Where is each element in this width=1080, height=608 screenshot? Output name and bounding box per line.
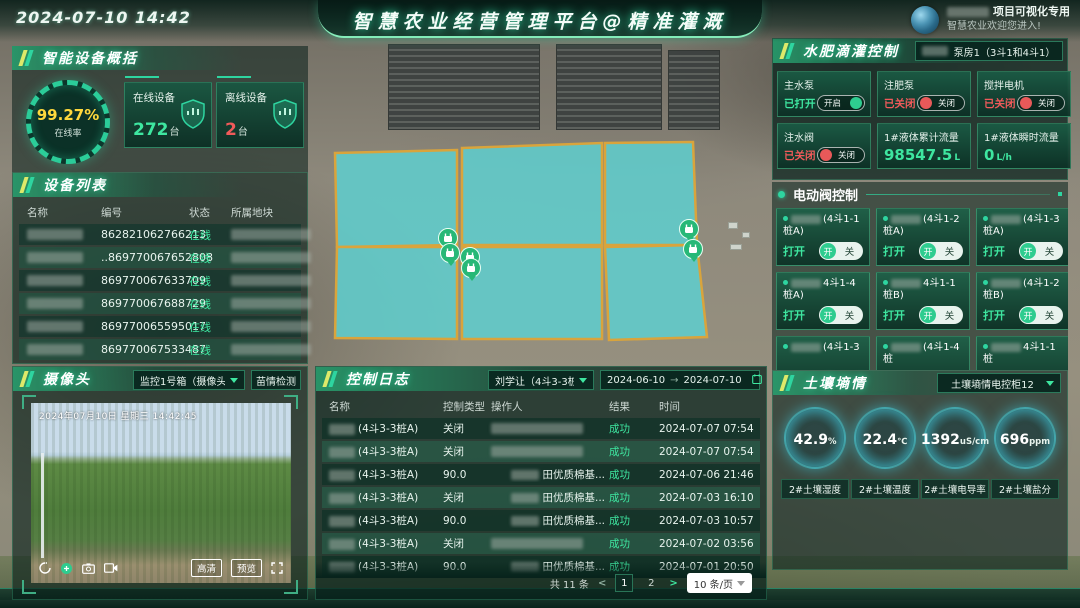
redacted-block [231,344,311,355]
meter-value: 98547.5L [884,146,960,164]
redacted-block [791,343,821,352]
soil-cabinet-selector[interactable]: 土壤墒情电控柜12 [937,373,1061,393]
log-result: 成功 [609,536,659,551]
valve-status: 打开 [983,307,1005,323]
log-row[interactable]: (4斗3-3桩A)关闭成功2024-07-07 07:54 [322,418,760,439]
log-row[interactable]: (4斗3-3桩A)关闭成功2024-07-07 07:54 [322,441,760,462]
redacted-block [511,516,539,526]
device-code: 869770065595017 [101,320,187,333]
redacted-block [511,493,539,503]
device-code: 862821062766213 [101,228,187,241]
redacted-block [791,215,821,224]
log-name: (4斗3-3桩A) [329,444,443,459]
status-dot-icon [983,280,988,285]
redacted-block [991,215,1021,224]
device-marker-icon[interactable] [683,239,703,259]
title-band: 智慧农业经营管理平台@精准灌溉 [318,0,762,38]
fullscreen-icon[interactable] [271,562,283,574]
log-result: 成功 [609,467,659,482]
log-type: 90.0 [443,515,491,527]
redacted-block [511,470,539,480]
valve-name: 4斗1-4桩A) [783,278,863,302]
dashboard: 智慧农业经营管理平台@精准灌溉 2024-07-10 14:42 项目可视化专用… [0,0,1080,608]
status-dot-icon [983,344,988,349]
log-type: 关闭 [443,421,491,436]
map-field[interactable] [462,247,602,339]
page-button-1[interactable]: 1 [615,574,633,592]
section-flag-icon [17,50,36,66]
meter-value: 0L/h [984,146,1012,164]
chevron-down-icon [737,581,745,586]
refresh-icon[interactable] [39,562,51,574]
switch-status: 已打开 [784,96,816,111]
switch-status: 已关闭 [784,148,816,163]
gauge-value: 696 [1000,432,1029,448]
open-button[interactable]: 开 [820,307,836,323]
ptz-icon[interactable] [60,562,73,575]
section-title: 摄像头 [43,369,91,389]
toggle-knob [920,97,932,109]
device-list-columns: 名称编号 状态所属地块 [13,197,307,224]
redacted-block [27,252,83,263]
gauge-ring: 42.9% [784,407,846,469]
log-operator: 田优质棉基... [491,513,609,528]
card-label: 主水泵 [784,77,864,92]
device-row[interactable]: 862821062766213在线 [19,224,301,245]
open-button[interactable]: 开 [820,243,836,259]
total-count: 共 11 条 [550,576,589,591]
device-status: 在线 [189,250,229,266]
device-status: 在线 [189,319,229,335]
log-name: (4斗3-3桩A) [329,467,443,482]
valve-name: (4斗1-3 [783,342,863,354]
field-map [325,130,725,365]
gauge-label: 2#土壤电导率 [921,479,989,499]
pump-switch-card: 主水泵已打开开启 [777,71,871,117]
camera-feed[interactable]: 2024年07月10日 星期三 14:42:45 [31,403,291,583]
page-title: 智慧农业经营管理平台@精准灌溉 [318,7,762,34]
redacted-block [329,424,355,435]
section-flag-icon [778,43,797,59]
solar-array [668,50,720,130]
valve-card: (4斗1-2桩A)打开开关 [876,208,970,266]
valve-status: 打开 [983,243,1005,259]
close-button[interactable]: 关 [836,308,863,322]
section-title: 控制日志 [346,369,410,389]
status-dot-icon [783,344,788,349]
redacted-block [891,343,921,352]
redacted-block [491,538,583,549]
soil-moisture-panel: 土壤墒情 土壤墒情电控柜12 42.9%2#土壤湿度22.4℃2#土壤温度139… [772,370,1068,570]
valve-card: (4斗1-4桩打开开关 [876,336,970,370]
log-time: 2024-07-02 03:56 [659,538,766,550]
device-row[interactable]: 869770067688729在线 [19,293,301,314]
valve-card: (4斗1-3桩A)打开开关 [976,208,1068,266]
avatar[interactable] [911,6,939,34]
device-code: 869770067633709 [101,274,187,287]
valve-name: (4斗1-2桩B) [983,278,1063,302]
line-end-icon [1058,192,1062,196]
prev-page-button[interactable]: < [598,578,606,589]
card-label: 1#液体瞬时流量 [984,129,1064,144]
gauge-ring: 22.4℃ [854,407,916,469]
redacted-block [329,539,355,550]
redacted-block [329,493,355,504]
power-toggle[interactable]: 关闭 [1017,95,1065,111]
log-operator [491,446,609,458]
log-operator: 田优质棉基... [491,490,609,505]
date-range-picker[interactable]: 2024-06-10 → 2024-07-10 [600,370,760,390]
device-status: 在线 [189,227,229,243]
redacted-block [231,252,311,263]
gauge-unit: uS/cm [960,437,989,447]
log-name: (4斗3-3桩A) [329,421,443,436]
valve-status: 打开 [783,307,805,323]
pump-house-selector[interactable]: 泵房1（3斗1和4斗1） [915,41,1063,61]
device-status: 在线 [189,342,229,358]
close-button[interactable]: 关 [1036,244,1063,258]
gauge-value: 22.4 [863,432,898,448]
hd-button[interactable]: 高清 [191,559,222,577]
user-area[interactable]: 项目可视化专用 智慧农业欢迎您进入! [911,4,1070,34]
camera-panel: 摄像头 监控1号箱（摄像头2... 苗情检测 2024年07月10日 星期三 1… [12,366,308,600]
irrigation-control-panel: 水肥滴灌控制 泵房1（3斗1和4斗1） 主水泵已打开开启注肥泵已关闭关闭搅拌电机… [772,38,1068,180]
section-flag-icon [18,371,37,387]
gauge-label: 2#土壤温度 [851,479,919,499]
valve-card: 4斗1-1桩打开开关 [976,336,1068,370]
close-button[interactable]: 关 [836,244,863,258]
camera-pole [41,453,44,557]
redacted-block [329,470,355,481]
log-result: 成功 [609,490,659,505]
section-title: 土壤墒情 [803,373,867,393]
redacted-block [922,46,948,56]
device-row[interactable]: 869770065595017在线 [19,316,301,337]
redacted-block [329,516,355,527]
valve-name: (4斗1-2桩A) [883,214,963,238]
card-label: 注水阀 [784,129,864,144]
section-header: 电动阀控制 [772,182,1068,206]
gauge-label: 2#土壤盐分 [991,479,1059,499]
switch-status: 已关闭 [984,96,1016,111]
redacted-block [991,343,1021,352]
redacted-block [27,298,83,309]
camera-selector[interactable]: 监控1号箱（摄像头2... [133,370,245,390]
map-building [742,232,750,238]
valve-toggle[interactable]: 开关 [1019,306,1063,324]
log-row[interactable]: (4斗3-3桩A)关闭成功2024-07-02 03:56 [322,533,760,554]
device-marker-icon[interactable] [461,258,481,278]
valve-control-panel: 电动阀控制 (4斗1-1桩A)打开开关(4斗1-2桩A)打开开关(4斗1-3桩A… [772,182,1068,370]
log-device-selector[interactable]: 刘学让（4斗3-3桩A） [488,370,594,390]
log-operator [491,538,609,550]
power-toggle[interactable]: 关闭 [917,95,965,111]
device-count-card: 离线设备2台 [216,82,304,148]
toggle-knob [820,149,832,161]
redacted-block [27,275,83,286]
valve-toggle[interactable]: 开关 [1019,242,1063,260]
preview-button[interactable]: 预览 [231,559,262,577]
section-flag-icon [18,177,37,193]
map-building [730,244,742,250]
redacted-block [491,423,583,434]
device-status: 在线 [189,296,229,312]
power-toggle[interactable]: 开启 [817,95,865,111]
redacted-block [891,215,921,224]
open-button[interactable]: 开 [920,307,936,323]
valve-status: 打开 [783,243,805,259]
chevron-down-icon [1046,381,1054,386]
gauge-value: 42.9 [793,432,828,448]
redacted-block [947,7,989,17]
switch-status: 已关闭 [884,96,916,111]
redacted-block [27,344,83,355]
device-code: 869770067533487 [101,343,187,356]
pagination: 共 11 条 < 1 2 > 10 条/页 [550,573,752,593]
valve-toggle[interactable]: 开关 [819,306,863,324]
gauge-unit: ppm [1029,437,1050,447]
log-time: 2024-07-07 07:54 [659,423,766,435]
valve-toggle[interactable]: 开关 [819,242,863,260]
valve-toggle[interactable]: 开关 [919,242,963,260]
valve-name: 4斗1-1桩B) [883,278,963,302]
log-name: (4斗3-3桩A) [329,513,443,528]
gauge-value: 1392 [921,432,960,448]
device-marker-icon[interactable] [440,243,460,263]
valve-toggle[interactable]: 开关 [919,306,963,324]
close-button[interactable]: 关 [936,308,963,322]
redacted-block [891,279,921,288]
redacted-block [991,279,1021,288]
soil-gauge: 1392uS/cm2#土壤电导率 [921,407,989,499]
pump-switch-card: 注水阀已关闭关闭 [777,123,871,169]
log-type: 关闭 [443,444,491,459]
device-row[interactable]: 869770067633709在线 [19,270,301,291]
solar-array [556,44,662,130]
log-time: 2024-07-07 07:54 [659,446,766,458]
status-dot-icon [883,344,888,349]
divider [866,194,1050,195]
gauge-unit: ℃ [897,437,907,447]
log-row[interactable]: (4斗3-3桩A)90.0田优质棉基...成功2024-07-03 10:57 [322,510,760,531]
record-icon[interactable] [104,563,118,573]
log-result: 成功 [609,444,659,459]
device-status: 在线 [189,273,229,289]
chevron-down-icon [579,378,587,383]
card-label: 1#液体累计流量 [884,129,964,144]
status-dot-icon [883,280,888,285]
log-operator: 田优质棉基... [491,467,609,482]
valve-name: (4斗1-3桩A) [983,214,1063,238]
user-project-label: 项目可视化专用 [993,5,1070,18]
online-rate-value: 99.27% [37,106,99,124]
card-value: 272台 [133,120,180,140]
redacted-block [491,446,583,457]
seedling-detect-button[interactable]: 苗情检测 [251,370,301,390]
log-time: 2024-07-03 10:57 [659,515,766,527]
card-label: 注肥泵 [884,77,964,92]
section-flag-icon [778,375,797,391]
online-shield-icon [180,99,206,129]
valve-name: (4斗1-4桩 [883,342,963,366]
toggle-knob [850,97,862,109]
gauge-unit: % [828,437,837,447]
soil-gauge: 42.9%2#土壤湿度 [781,407,849,499]
status-dot-icon [783,216,788,221]
section-flag-icon [321,371,340,387]
per-page-select[interactable]: 10 条/页 [687,573,752,593]
online-rate-label: 在线率 [54,126,81,139]
map-field[interactable] [335,247,457,339]
valve-card: (4斗1-3打开开关 [776,336,870,370]
valve-name: (4斗1-1桩A) [783,214,863,238]
welcome-text: 智慧农业欢迎您进入! [947,19,1070,34]
map-field[interactable] [462,143,602,245]
card-label: 搅拌电机 [984,77,1064,92]
online-rate-gauge: 99.27% 在线率 [26,80,110,164]
section-header: 智能设备概括 [12,46,308,70]
solar-array [388,44,540,130]
page-button-2[interactable]: 2 [642,574,660,592]
device-code: 869770067688729 [101,297,187,310]
log-name: (4斗3-3桩A) [329,490,443,505]
redacted-block [329,447,355,458]
log-result: 成功 [609,513,659,528]
status-dot-icon [983,216,988,221]
pump-switch-card: 搅拌电机已关闭关闭 [977,71,1071,117]
log-time: 2024-07-03 16:10 [659,492,766,504]
close-button[interactable]: 关 [936,244,963,258]
soil-gauge: 22.4℃2#土壤温度 [851,407,919,499]
open-button[interactable]: 开 [1020,307,1036,323]
redacted-block [231,298,311,309]
log-type: 关闭 [443,490,491,505]
valve-card: (4斗1-1桩A)打开开关 [776,208,870,266]
valve-card: 4斗1-1桩B)打开开关 [876,272,970,330]
control-log-columns: 名称控制类型 操作人结果 时间 [316,391,766,418]
redacted-block [27,321,83,332]
offline-shield-icon [272,99,298,129]
calendar-icon [752,374,762,387]
next-page-button[interactable]: > [669,578,677,589]
redacted-block [231,321,311,332]
control-log-panel: 控制日志 刘学让（4斗3-3桩A） 2024-06-10 → 2024-07-1… [315,366,767,600]
redacted-block [27,229,83,240]
device-overview-panel: 智能设备概括 99.27% 在线率 在线设备272台离线设备2台 [12,46,308,172]
device-row[interactable]: 869770067533487在线 [19,339,301,360]
log-type: 90.0 [443,469,491,481]
log-result: 成功 [609,421,659,436]
camera-timestamp: 2024年07月10日 星期三 14:42:45 [39,409,197,422]
bullet-dot-icon [778,191,785,198]
log-row[interactable]: (4斗3-3桩A)关闭田优质棉基...成功2024-07-03 16:10 [322,487,760,508]
redacted-block [791,279,821,288]
close-button[interactable]: 关 [1036,308,1063,322]
snapshot-icon[interactable] [82,563,95,574]
log-time: 2024-07-06 21:46 [659,469,766,481]
valve-card: 4斗1-4桩A)打开开关 [776,272,870,330]
toggle-knob [1020,97,1032,109]
status-dot-icon [883,216,888,221]
pump-switch-card: 注肥泵已关闭关闭 [877,71,971,117]
open-button[interactable]: 开 [920,243,936,259]
map-building [728,222,738,229]
valve-card: (4斗1-2桩B)打开开关 [976,272,1068,330]
section-title: 电动阀控制 [793,185,858,204]
chevron-down-icon [230,378,238,383]
log-row[interactable]: (4斗3-3桩A)90.0田优质棉基...成功2024-07-06 21:46 [322,464,760,485]
device-list-panel: 设备列表 名称编号 状态所属地块 862821062766213在线..8697… [12,172,308,364]
gauge-label: 2#土壤湿度 [781,479,849,499]
status-dot-icon [783,280,788,285]
device-code: ..869770067652808 [101,251,187,264]
gauge-ring: 696ppm [994,407,1056,469]
section-header: 设备列表 [13,173,307,197]
valve-status: 打开 [883,307,905,323]
valve-status: 打开 [883,243,905,259]
power-toggle[interactable]: 关闭 [817,147,865,163]
card-value: 2台 [225,120,248,140]
device-row[interactable]: ..869770067652808在线 [19,247,301,268]
top-header: 智慧农业经营管理平台@精准灌溉 2024-07-10 14:42 项目可视化专用… [0,0,1080,42]
flow-meter-card: 1#液体瞬时流量0L/h [977,123,1071,169]
redacted-block [231,275,311,286]
open-button[interactable]: 开 [1020,243,1036,259]
soil-gauge: 696ppm2#土壤盐分 [991,407,1059,499]
section-title: 水肥滴灌控制 [803,41,899,61]
log-type: 关闭 [443,536,491,551]
gauge-ring: 1392uS/cm [924,407,986,469]
section-title: 智能设备概括 [42,48,138,68]
flow-meter-card: 1#液体累计流量98547.5L [877,123,971,169]
redacted-block [231,229,311,240]
log-operator [491,423,609,435]
camera-toolbar: 高清 预览 [31,559,291,577]
valve-name: 4斗1-1桩 [983,342,1063,366]
device-count-card: 在线设备272台 [124,82,212,148]
section-title: 设备列表 [43,175,107,195]
log-name: (4斗3-3桩A) [329,536,443,551]
device-marker-icon[interactable] [679,219,699,239]
datetime: 2024-07-10 14:42 [16,8,191,27]
